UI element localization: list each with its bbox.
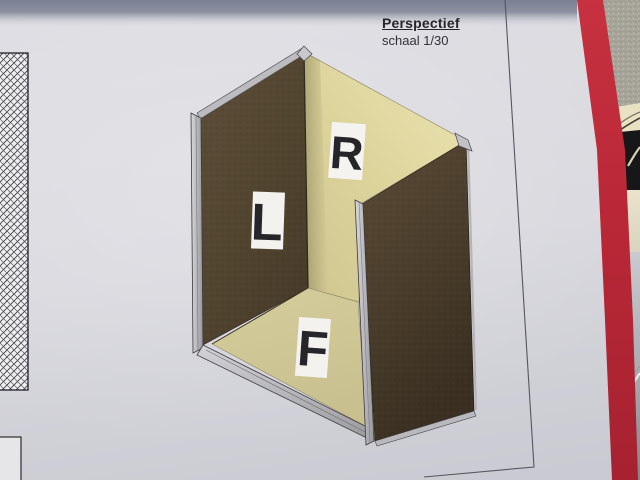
drawing-scale: schaal 1/30	[382, 33, 460, 48]
drawing-sheet-graphics: R L F	[0, 0, 640, 480]
desk-and-objects-right	[577, 0, 640, 480]
wall-section-hatch	[0, 53, 28, 390]
top-shadow-band	[0, 0, 577, 27]
label-left-panel: L	[250, 191, 285, 252]
photographed-drawing-sheet: R L F Perspectief schaal 1/30	[0, 0, 640, 480]
title-block: Perspectief schaal 1/30	[382, 15, 460, 48]
label-floor: F	[295, 317, 331, 378]
cabinet-perspective-drawing: R L F	[191, 46, 476, 446]
label-right-panel: R	[328, 122, 366, 180]
panel-label-l: L	[250, 193, 284, 252]
drawing-frame-corner-box	[0, 437, 21, 480]
drawing-title: Perspectief	[382, 15, 460, 31]
panel-label-f: F	[296, 320, 330, 378]
panel-label-r: R	[328, 126, 365, 180]
